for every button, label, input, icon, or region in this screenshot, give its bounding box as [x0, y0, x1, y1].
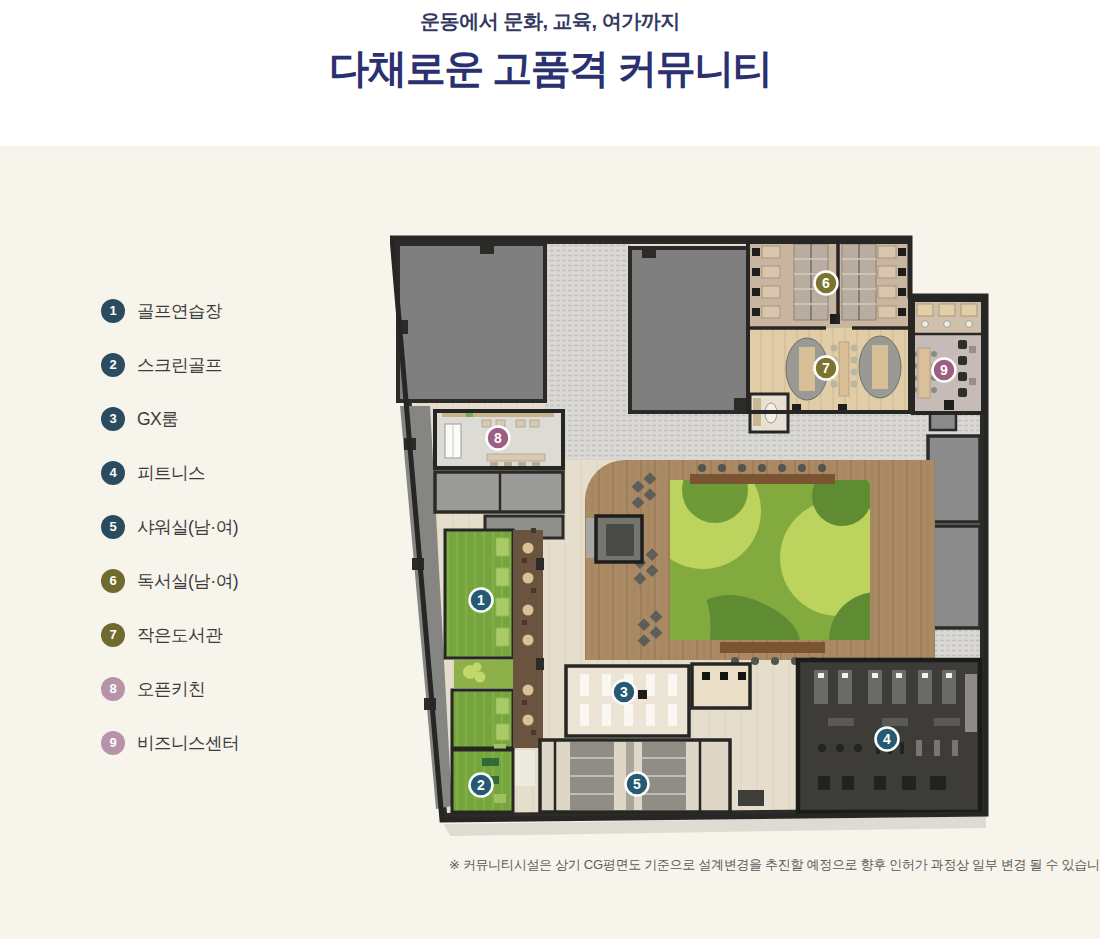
svg-text:2: 2 [477, 777, 485, 793]
legend-label: 작은도서관 [137, 623, 222, 647]
plan-marker-6: 6 [815, 272, 838, 295]
legend-label: 오픈키친 [137, 677, 205, 701]
legend-label: 스크린골프 [137, 353, 222, 377]
legend-item-fitness: 4 피트니스 [101, 459, 239, 486]
room-business-center [911, 300, 983, 413]
page-title: 다채로운 고품격 커뮤니티 [0, 35, 1100, 96]
legend-item-gx-room: 3 GX룸 [101, 405, 239, 432]
plan-marker-4: 4 [876, 728, 899, 751]
svg-text:1: 1 [477, 592, 485, 608]
core-room-right-top [928, 436, 980, 522]
legend-number-badge: 6 [101, 569, 125, 593]
legend-item-business-center: 9 비즈니스센터 [101, 729, 239, 756]
svg-text:6: 6 [822, 275, 830, 291]
plan-marker-3: 3 [613, 681, 636, 704]
svg-text:3: 3 [620, 684, 628, 700]
legend-item-reading-room: 6 독서실(남·여) [101, 567, 239, 594]
facility-legend: 1 골프연습장 2 스크린골프 3 GX룸 4 피트니스 5 샤워실(남·여) … [101, 297, 239, 783]
plan-marker-5: 5 [626, 773, 649, 796]
legend-number-badge: 8 [101, 677, 125, 701]
legend-label: 골프연습장 [137, 299, 222, 323]
legend-label: 독서실(남·여) [137, 569, 238, 593]
page-header: 운동에서 문화, 교육, 여가까지 다채로운 고품격 커뮤니티 [0, 0, 1100, 146]
courtyard-deck [585, 453, 935, 688]
floor-plan: 1 2 3 4 5 6 7 [390, 228, 990, 840]
svg-text:7: 7 [822, 360, 830, 376]
legend-number-badge: 7 [101, 623, 125, 647]
legend-item-small-library: 7 작은도서관 [101, 621, 239, 648]
disclaimer-text: ※ 커뮤니티시설은 상기 CG평면도 기준으로 설계변경을 추진할 예정으로 향… [449, 856, 1100, 874]
svg-text:4: 4 [883, 731, 891, 747]
golf-lounge-strip [513, 528, 544, 748]
page-subtitle: 운동에서 문화, 교육, 여가까지 [0, 0, 1100, 35]
legend-number-badge: 5 [101, 515, 125, 539]
plan-marker-8: 8 [487, 427, 510, 450]
svg-text:9: 9 [940, 362, 948, 378]
svg-text:5: 5 [633, 776, 641, 792]
room-sauna [692, 664, 750, 708]
legend-label: 샤워실(남·여) [137, 515, 238, 539]
plan-marker-2: 2 [470, 774, 493, 797]
svg-text:8: 8 [494, 430, 502, 446]
plan-marker-7: 7 [815, 357, 838, 380]
plan-marker-9: 9 [933, 359, 956, 382]
legend-number-badge: 1 [101, 299, 125, 323]
legend-number-badge: 4 [101, 461, 125, 485]
plan-marker-1: 1 [470, 589, 493, 612]
legend-label: 피트니스 [137, 461, 205, 485]
legend-item-golf-range: 1 골프연습장 [101, 297, 239, 324]
legend-item-shower: 5 샤워실(남·여) [101, 513, 239, 540]
floor-plan-image: 1 2 3 4 5 6 7 [390, 228, 990, 840]
legend-label: 비즈니스센터 [137, 731, 239, 755]
core-room-middle [630, 248, 750, 412]
page: 운동에서 문화, 교육, 여가까지 다채로운 고품격 커뮤니티 1 골프연습장 … [0, 0, 1100, 939]
legend-item-open-kitchen: 8 오픈키친 [101, 675, 239, 702]
legend-item-screen-golf: 2 스크린골프 [101, 351, 239, 378]
legend-number-badge: 3 [101, 407, 125, 431]
legend-number-badge: 2 [101, 353, 125, 377]
room-golf-range [440, 530, 513, 748]
core-room-left [398, 244, 545, 401]
legend-number-badge: 9 [101, 731, 125, 755]
legend-label: GX룸 [137, 407, 178, 431]
core-room-right-bottom [928, 526, 980, 628]
